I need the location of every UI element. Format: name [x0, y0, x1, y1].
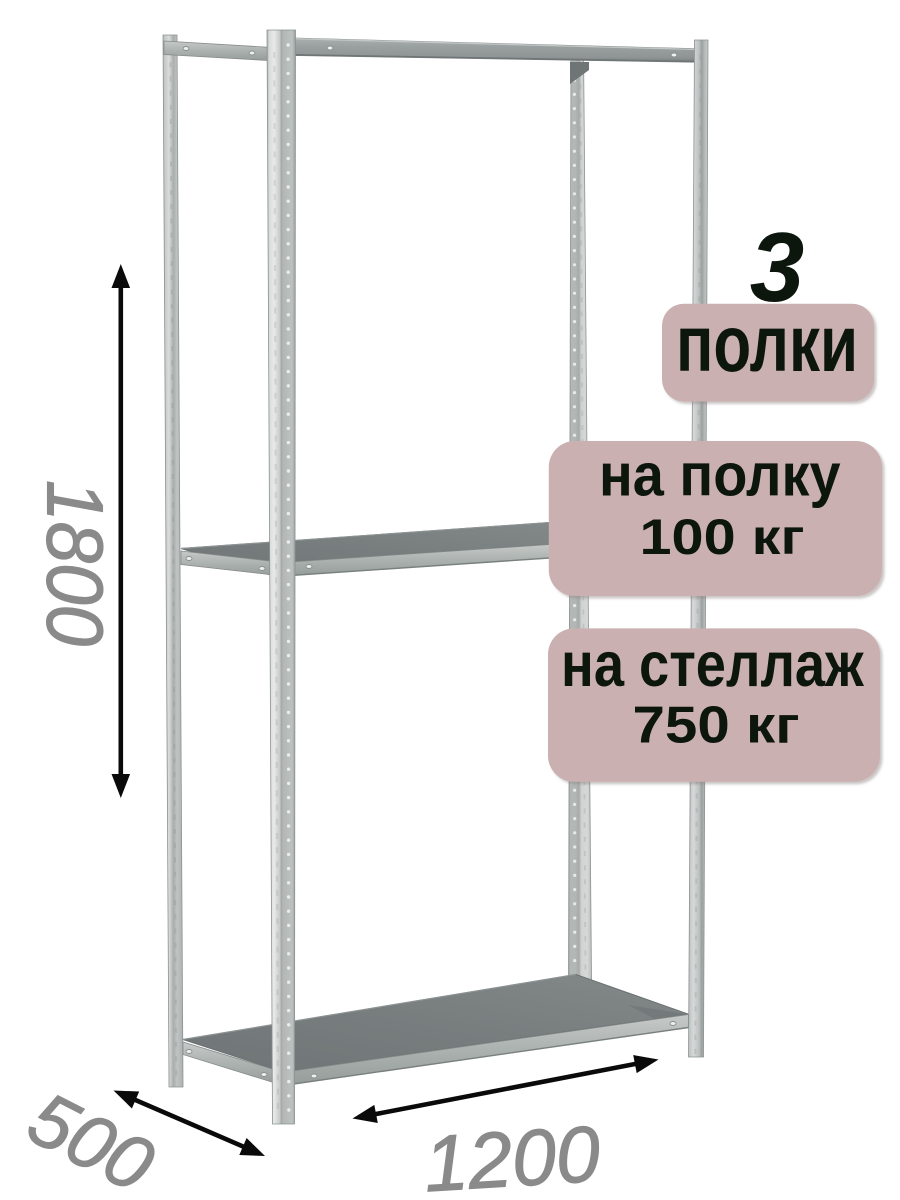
svg-text:1800: 1800	[31, 480, 120, 646]
svg-text:полки: полки	[676, 299, 858, 388]
svg-text:на стеллаж: на стеллаж	[561, 630, 864, 700]
svg-text:750 кг: 750 кг	[633, 696, 800, 754]
svg-text:1200: 1200	[422, 1109, 603, 1200]
svg-text:100 кг: 100 кг	[640, 509, 805, 565]
svg-text:на полку: на полку	[599, 442, 841, 509]
svg-text:500: 500	[15, 1076, 167, 1200]
